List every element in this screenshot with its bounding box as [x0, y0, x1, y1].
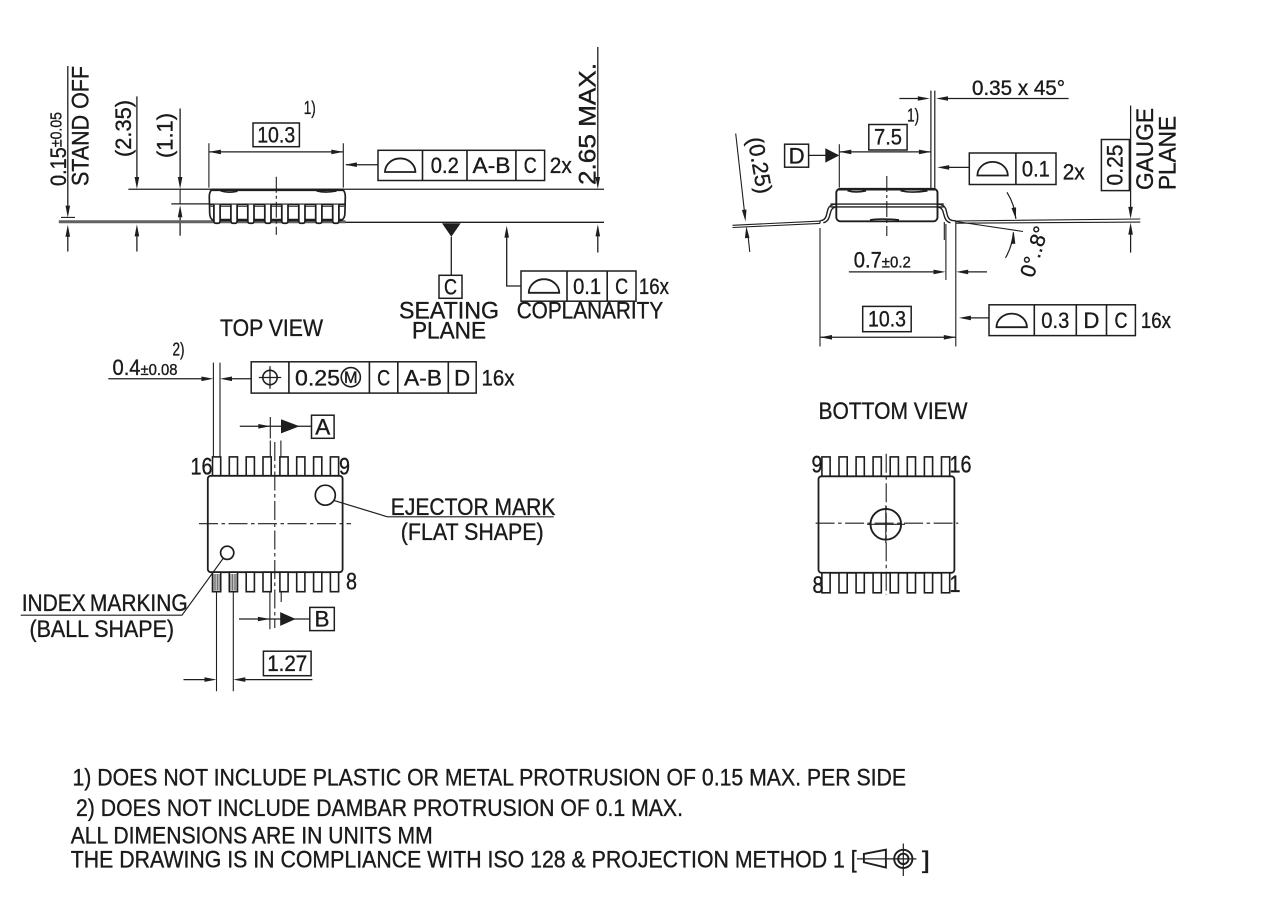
- svg-text:COPLANARITY: COPLANARITY: [517, 298, 664, 325]
- svg-text:C: C: [524, 153, 537, 178]
- svg-text:PLANE: PLANE: [1155, 116, 1182, 190]
- svg-text:TOP VIEW: TOP VIEW: [220, 315, 323, 342]
- svg-text:0.1: 0.1: [1022, 157, 1050, 182]
- svg-text:0.35 x 45°: 0.35 x 45°: [972, 77, 1065, 100]
- svg-text:(FLAT SHAPE): (FLAT SHAPE): [401, 519, 544, 546]
- svg-text:1: 1: [950, 571, 961, 598]
- svg-text:1.27: 1.27: [267, 651, 307, 676]
- svg-text:0.3: 0.3: [1041, 308, 1069, 333]
- svg-text:8: 8: [813, 572, 824, 599]
- svg-text:B: B: [315, 607, 330, 632]
- svg-text:16x: 16x: [1141, 308, 1171, 333]
- svg-text:A-B: A-B: [473, 153, 511, 178]
- svg-text:2x: 2x: [1063, 160, 1085, 185]
- svg-text:1): 1): [304, 98, 316, 118]
- svg-text:16x: 16x: [482, 365, 515, 390]
- svg-text:10.3: 10.3: [868, 307, 906, 332]
- svg-text:16: 16: [950, 452, 972, 479]
- svg-text:BOTTOM VIEW: BOTTOM VIEW: [819, 398, 968, 425]
- svg-text:A-B: A-B: [404, 365, 442, 390]
- svg-text:D: D: [1083, 308, 1099, 333]
- svg-text:C: C: [377, 365, 390, 390]
- svg-text:0.25: 0.25: [1103, 145, 1128, 186]
- svg-text:C: C: [615, 274, 628, 299]
- svg-text:INDEX MARKING: INDEX MARKING: [22, 590, 188, 617]
- svg-text:D: D: [454, 365, 470, 390]
- svg-text:2): 2): [173, 340, 185, 360]
- svg-text:(2.35): (2.35): [111, 100, 136, 157]
- svg-text:]: ]: [922, 847, 930, 874]
- svg-text:M: M: [344, 369, 358, 387]
- svg-text:A: A: [315, 414, 330, 439]
- svg-text:8: 8: [346, 569, 357, 596]
- svg-text:2x: 2x: [550, 153, 572, 178]
- svg-text:9: 9: [812, 452, 823, 479]
- svg-text:1): 1): [907, 105, 919, 125]
- svg-text:0.2: 0.2: [431, 153, 459, 178]
- svg-text:10.3: 10.3: [257, 122, 295, 147]
- svg-text:PLANE: PLANE: [412, 318, 486, 345]
- svg-text:ALL DIMENSIONS ARE IN UNITS MM: ALL DIMENSIONS ARE IN UNITS MM: [71, 823, 433, 850]
- svg-text:0.25: 0.25: [295, 365, 340, 390]
- svg-text:D: D: [789, 143, 805, 168]
- svg-text:EJECTOR MARK: EJECTOR MARK: [391, 494, 556, 521]
- svg-text:0.1: 0.1: [573, 274, 601, 299]
- svg-text:(1.1): (1.1): [153, 113, 178, 158]
- svg-text:(BALL SHAPE): (BALL SHAPE): [30, 616, 175, 643]
- svg-text:16x: 16x: [639, 274, 669, 299]
- svg-text:7.5: 7.5: [874, 124, 902, 149]
- svg-text:C: C: [444, 275, 457, 300]
- svg-text:1) DOES NOT INCLUDE PLASTIC OR: 1) DOES NOT INCLUDE PLASTIC OR METAL PRO…: [73, 765, 907, 792]
- svg-text:2) DOES NOT INCLUDE DAMBAR PRO: 2) DOES NOT INCLUDE DAMBAR PROTRUSION OF…: [76, 795, 683, 822]
- svg-text:C: C: [1115, 308, 1128, 333]
- svg-text:STAND OFF: STAND OFF: [68, 66, 95, 186]
- svg-text:THE DRAWING IS IN COMPLIANCE W: THE DRAWING IS IN COMPLIANCE WITH ISO 12…: [71, 847, 857, 874]
